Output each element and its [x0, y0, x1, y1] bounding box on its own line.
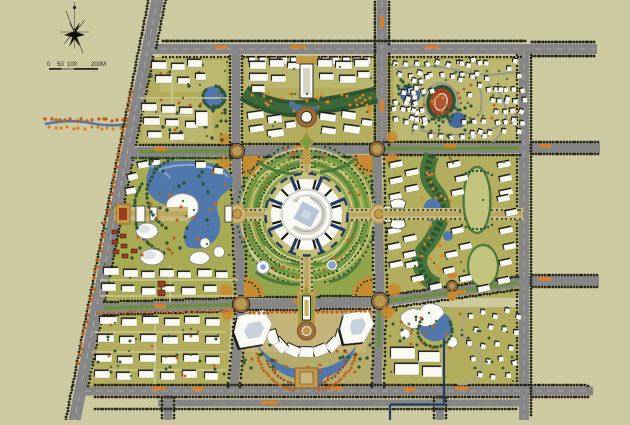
svg-text:200M: 200M [91, 62, 106, 68]
svg-text:100: 100 [67, 62, 78, 68]
svg-text:50: 50 [57, 62, 64, 68]
